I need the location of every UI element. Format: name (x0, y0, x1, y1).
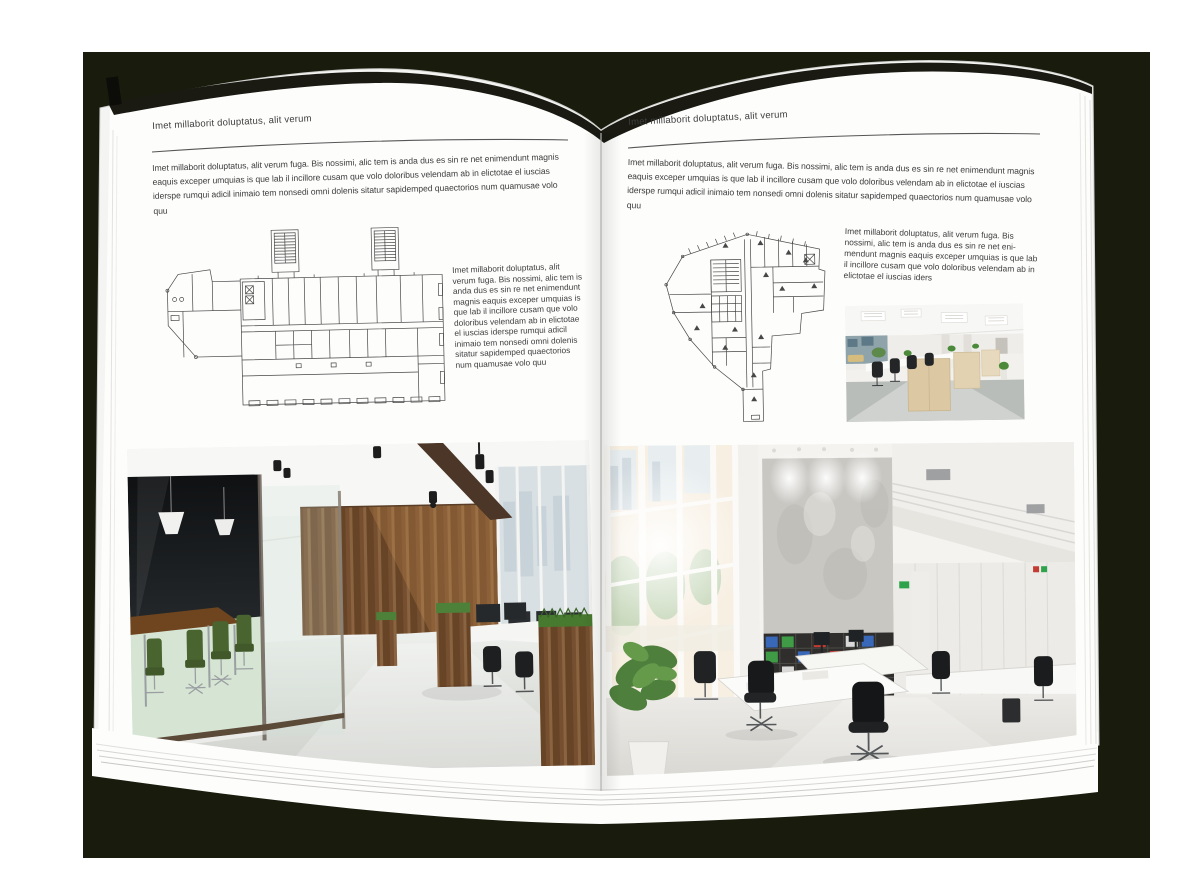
left-intro-paragraph: Imet millaborit doluptatus, alit verum f… (152, 149, 569, 217)
left-office-photo (127, 440, 595, 774)
right-header-rule (626, 130, 1044, 152)
right-floor-plan-drawing (652, 216, 844, 425)
magazine-spread-mockup: Imet millaborit doluptatus, alit verum I… (0, 0, 1200, 891)
right-small-office-photo (845, 304, 1025, 422)
right-side-text: Imet millaborit doluptatus, alit verum f… (843, 226, 1042, 287)
left-side-text: Imet millaborit doluptatus, alit verum f… (452, 260, 586, 369)
right-office-photo (604, 442, 1077, 782)
right-intro-paragraph: Imet millaborit doluptatus, alit verum f… (627, 155, 1044, 221)
left-floor-plan-drawing (153, 221, 449, 415)
